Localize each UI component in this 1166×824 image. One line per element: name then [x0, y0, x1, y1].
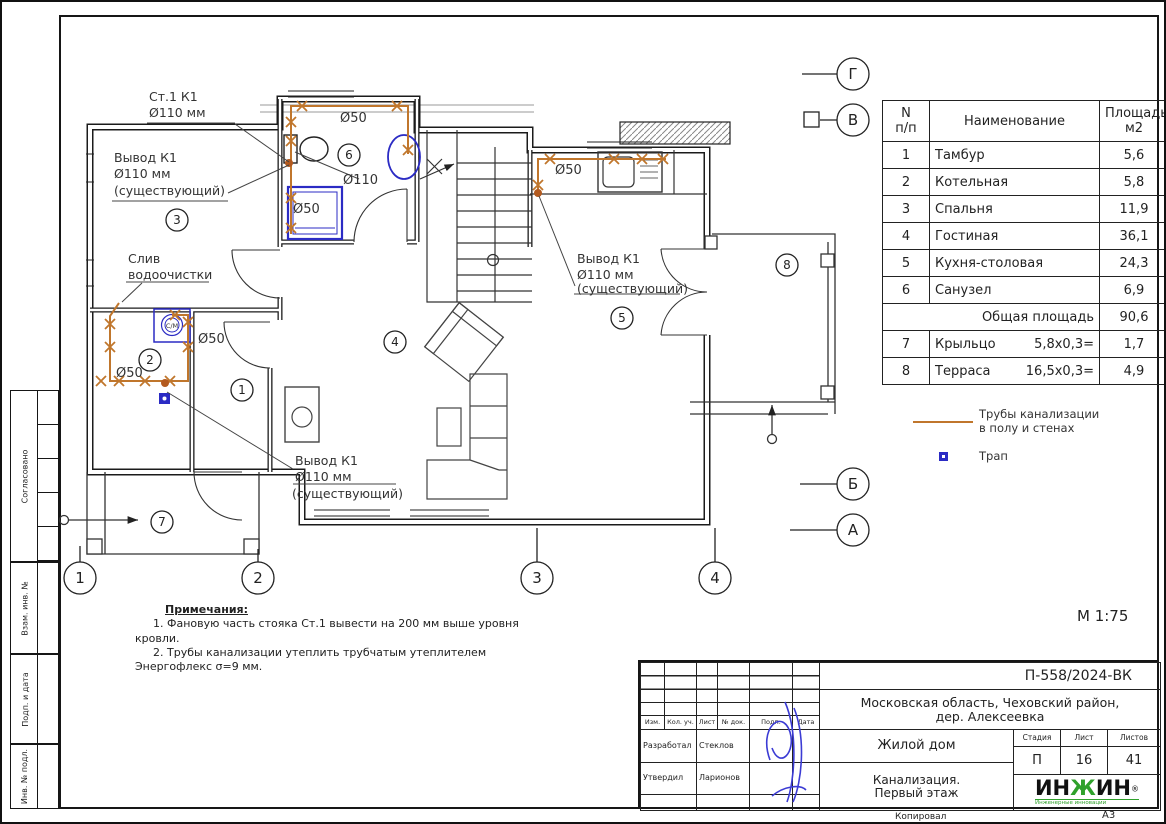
rev-grid-col: [640, 662, 665, 716]
pipe-fittings: [96, 101, 668, 387]
table-row: 7 Крыльцо 5,8х0,3= 1,7: [883, 331, 1166, 358]
row-n: 5: [883, 250, 930, 277]
dn50-shower: Ø50: [293, 202, 320, 217]
row-area: 5,6: [1100, 142, 1166, 169]
header-area: Площадь м2: [1100, 101, 1166, 142]
sheets-value: 41: [1107, 746, 1161, 775]
header-n-line1: N: [888, 106, 924, 121]
legend-pipes: Трубы канализации в полу и стенах: [907, 407, 1137, 435]
col-list: Лист: [696, 715, 718, 730]
vyvod-bottom-line2: Ø110 мм: [295, 469, 352, 484]
dn50-boiler-2: Ø50: [116, 366, 143, 381]
row-name: Котельная: [930, 169, 1100, 196]
row-area: 1,7: [1100, 331, 1166, 358]
washing-machine-label: С/М: [166, 322, 178, 330]
stage-label: Стадия: [1013, 729, 1061, 747]
stamp-vzam-label: Взам. инв. №: [11, 563, 39, 653]
inzhin-logo: ИНЖИН® Инженерные инновации: [1035, 779, 1139, 807]
pipe-line-symbol: [907, 407, 979, 423]
room-5: 5: [618, 311, 626, 325]
drawing-sheet: С/М: [0, 0, 1166, 824]
col-kol: Кол. уч.: [664, 715, 697, 730]
axis-2: 2: [253, 569, 263, 587]
title-block: Изм. Кол. уч. Лист № док. Подп. Дата Раз…: [638, 660, 1159, 809]
legend: Трубы канализации в полу и стенах Трап: [907, 407, 1137, 477]
row-n: 8: [883, 358, 930, 385]
axis-a: А: [848, 521, 859, 539]
row-area: 11,9: [1100, 196, 1166, 223]
logo-subtitle: Инженерные инновации: [1035, 799, 1139, 806]
location-line1: Московская область, Чеховский район,: [861, 696, 1120, 709]
row-n: 2: [883, 169, 930, 196]
logo-reg-mark: ®: [1131, 784, 1139, 793]
doc-title-line2: Первый этаж: [875, 787, 959, 800]
trap-symbol: [907, 449, 979, 461]
stamp-podp-label: Подп. и дата: [11, 655, 39, 743]
signature: [740, 690, 835, 810]
project-location: Московская область, Чеховский район, дер…: [819, 689, 1161, 730]
kopiroval-label: Копировал: [895, 812, 946, 822]
header-area-line2: м2: [1105, 121, 1163, 136]
axis-4: 4: [710, 569, 720, 587]
legend-pipes-line1: Трубы канализации: [979, 407, 1099, 421]
stamp-soglasovano-cells: [37, 391, 58, 561]
row-name: Терраса 16,5х0,3=: [930, 358, 1100, 385]
row-n: 4: [883, 223, 930, 250]
staircase: [420, 130, 532, 302]
row-n: 6: [883, 277, 930, 304]
room-6: 6: [345, 148, 353, 162]
vyvod-bottom-line3: (существующий): [292, 486, 403, 501]
vyvod-bottom-line1: Вывод К1: [295, 453, 358, 468]
stamp-inv-cell: [37, 745, 58, 808]
total-label: Общая площадь: [883, 304, 1100, 331]
total-area: 90,6: [1100, 304, 1166, 331]
floor-drain: [159, 393, 170, 404]
row-name: Кухня-столовая: [930, 250, 1100, 277]
row-name: Крыльцо 5,8х0,3=: [930, 331, 1100, 358]
stamp-podp-cell: [37, 655, 58, 743]
vyvod-kitchen-line3: (существующий): [577, 281, 688, 296]
header-n: N п/п: [883, 101, 930, 142]
table-row: 8 Терраса 16,5х0,3= 4,9: [883, 358, 1166, 385]
header-area-line1: Площадь: [1105, 106, 1163, 121]
row-name: Спальня: [930, 196, 1100, 223]
table-row: 5 Кухня-столовая 24,3: [883, 250, 1166, 277]
terrace: [690, 234, 835, 444]
project-code: П-558/2024-ВК: [819, 662, 1161, 690]
row-area: 24,3: [1100, 250, 1166, 277]
stamp-vzam: Взам. инв. №: [10, 562, 59, 654]
table-header-row: N п/п Наименование Площадь м2: [883, 101, 1166, 142]
location-line2: дер. Алексеевка: [936, 710, 1045, 723]
row-area: 5,8: [1100, 169, 1166, 196]
table-row: 6 Санузел 6,9: [883, 277, 1166, 304]
chimney-block: [620, 122, 730, 144]
row-n: 3: [883, 196, 930, 223]
room-area-table: N п/п Наименование Площадь м2 1 Тамбур 5…: [882, 100, 1166, 385]
notes-line1: 1. Фановую часть стояка Ст.1 вывести на …: [153, 617, 545, 631]
notes-line4: Энергофлекс σ=9 мм.: [135, 660, 545, 674]
sheet-label: Лист: [1060, 729, 1108, 747]
row-name-text: Терраса: [935, 364, 991, 379]
stamp-inv: Инв. № подл.: [10, 744, 59, 809]
vyvod-left-line1: Вывод К1: [114, 150, 177, 165]
notes-title: Примечания:: [165, 603, 545, 617]
row-name: Тамбур: [930, 142, 1100, 169]
room-3: 3: [173, 213, 181, 227]
header-n-line2: п/п: [888, 121, 924, 136]
axis-3: 3: [532, 569, 542, 587]
row-name: Санузел: [930, 277, 1100, 304]
sliv-label-line2: водоочистки: [128, 267, 212, 282]
rev-grid-col: [664, 662, 697, 716]
sheets-label: Листов: [1107, 729, 1161, 747]
doc-title: Канализация. Первый этаж: [819, 762, 1014, 811]
room-2: 2: [146, 353, 154, 367]
dn110-bath: Ø110: [343, 173, 378, 188]
row-calc: 16,5х0,3=: [1026, 364, 1094, 379]
row-name-text: Крыльцо: [935, 337, 996, 352]
room-4: 4: [391, 335, 399, 349]
row-area: 4,9: [1100, 358, 1166, 385]
row-calc: 5,8х0,3=: [1034, 337, 1094, 352]
sliv-label-line1: Слив: [128, 251, 160, 266]
stack-label-line2: Ø110 мм: [149, 105, 206, 120]
table-row: 3 Спальня 11,9: [883, 196, 1166, 223]
room-7: 7: [158, 515, 166, 529]
stage-value: П: [1013, 746, 1061, 775]
doc-title-line1: Канализация.: [873, 774, 960, 787]
stamp-soglasovano: Согласовано: [10, 390, 59, 562]
logo-part3: ИН: [1096, 776, 1131, 800]
axis-1: 1: [75, 569, 85, 587]
room-1: 1: [238, 383, 246, 397]
legend-trap: Трап: [907, 449, 1137, 463]
dn50-boiler-1: Ø50: [198, 332, 225, 347]
header-name: Наименование: [930, 101, 1100, 142]
vyvod-left-line3: (существующий): [114, 183, 225, 198]
stack-label-line1: Ст.1 К1: [149, 89, 198, 104]
row-name: Гостиная: [930, 223, 1100, 250]
row-area: 6,9: [1100, 277, 1166, 304]
role-utverdil: Утвердил: [640, 762, 697, 795]
legend-pipes-text: Трубы канализации в полу и стенах: [979, 407, 1099, 435]
notes: Примечания: 1. Фановую часть стояка Ст.1…: [135, 603, 545, 674]
stamp-inv-label: Инв. № подл.: [11, 745, 39, 808]
stamp-podp: Подп. и дата: [10, 654, 59, 744]
notes-line2: кровли.: [135, 632, 545, 646]
row-n: 7: [883, 331, 930, 358]
vyvod-kitchen-line2: Ø110 мм: [577, 267, 634, 282]
sheet-value: 16: [1060, 746, 1108, 775]
row-area: 36,1: [1100, 223, 1166, 250]
legend-pipes-line2: в полу и стенах: [979, 421, 1099, 435]
vyvod-left-line2: Ø110 мм: [114, 166, 171, 181]
axis-b: Б: [848, 475, 858, 493]
logo-cell: ИНЖИН® Инженерные инновации: [1013, 774, 1161, 811]
col-izm: Изм.: [640, 715, 665, 730]
object-name: Жилой дом: [819, 729, 1014, 763]
format-label: А3: [1102, 810, 1115, 821]
logo-part1: ИН: [1035, 776, 1070, 800]
role-razrabotal: Разработал: [640, 729, 697, 763]
row-n: 1: [883, 142, 930, 169]
notes-line3: 2. Трубы канализации утеплить трубчатым …: [153, 646, 545, 660]
dn50-kitchen: Ø50: [555, 163, 582, 178]
stamp-vzam-cell: [37, 563, 58, 653]
room-8: 8: [783, 258, 791, 272]
table-row: 1 Тамбур 5,6: [883, 142, 1166, 169]
dn50-bath-top: Ø50: [340, 111, 367, 126]
table-row: 4 Гостиная 36,1: [883, 223, 1166, 250]
rev-grid-col: [696, 662, 718, 716]
scale-label: М 1:75: [1077, 607, 1128, 625]
stamp-soglasovano-label: Согласовано: [11, 391, 39, 561]
table-total-row: Общая площадь 90,6: [883, 304, 1166, 331]
logo-part2: Ж: [1070, 776, 1096, 800]
axis-g: Г: [848, 65, 857, 83]
vyvod-kitchen-line1: Вывод К1: [577, 251, 640, 266]
table-row: 2 Котельная 5,8: [883, 169, 1166, 196]
legend-trap-text: Трап: [979, 449, 1008, 463]
axis-v: В: [848, 111, 858, 129]
empty-cell: [640, 794, 697, 811]
